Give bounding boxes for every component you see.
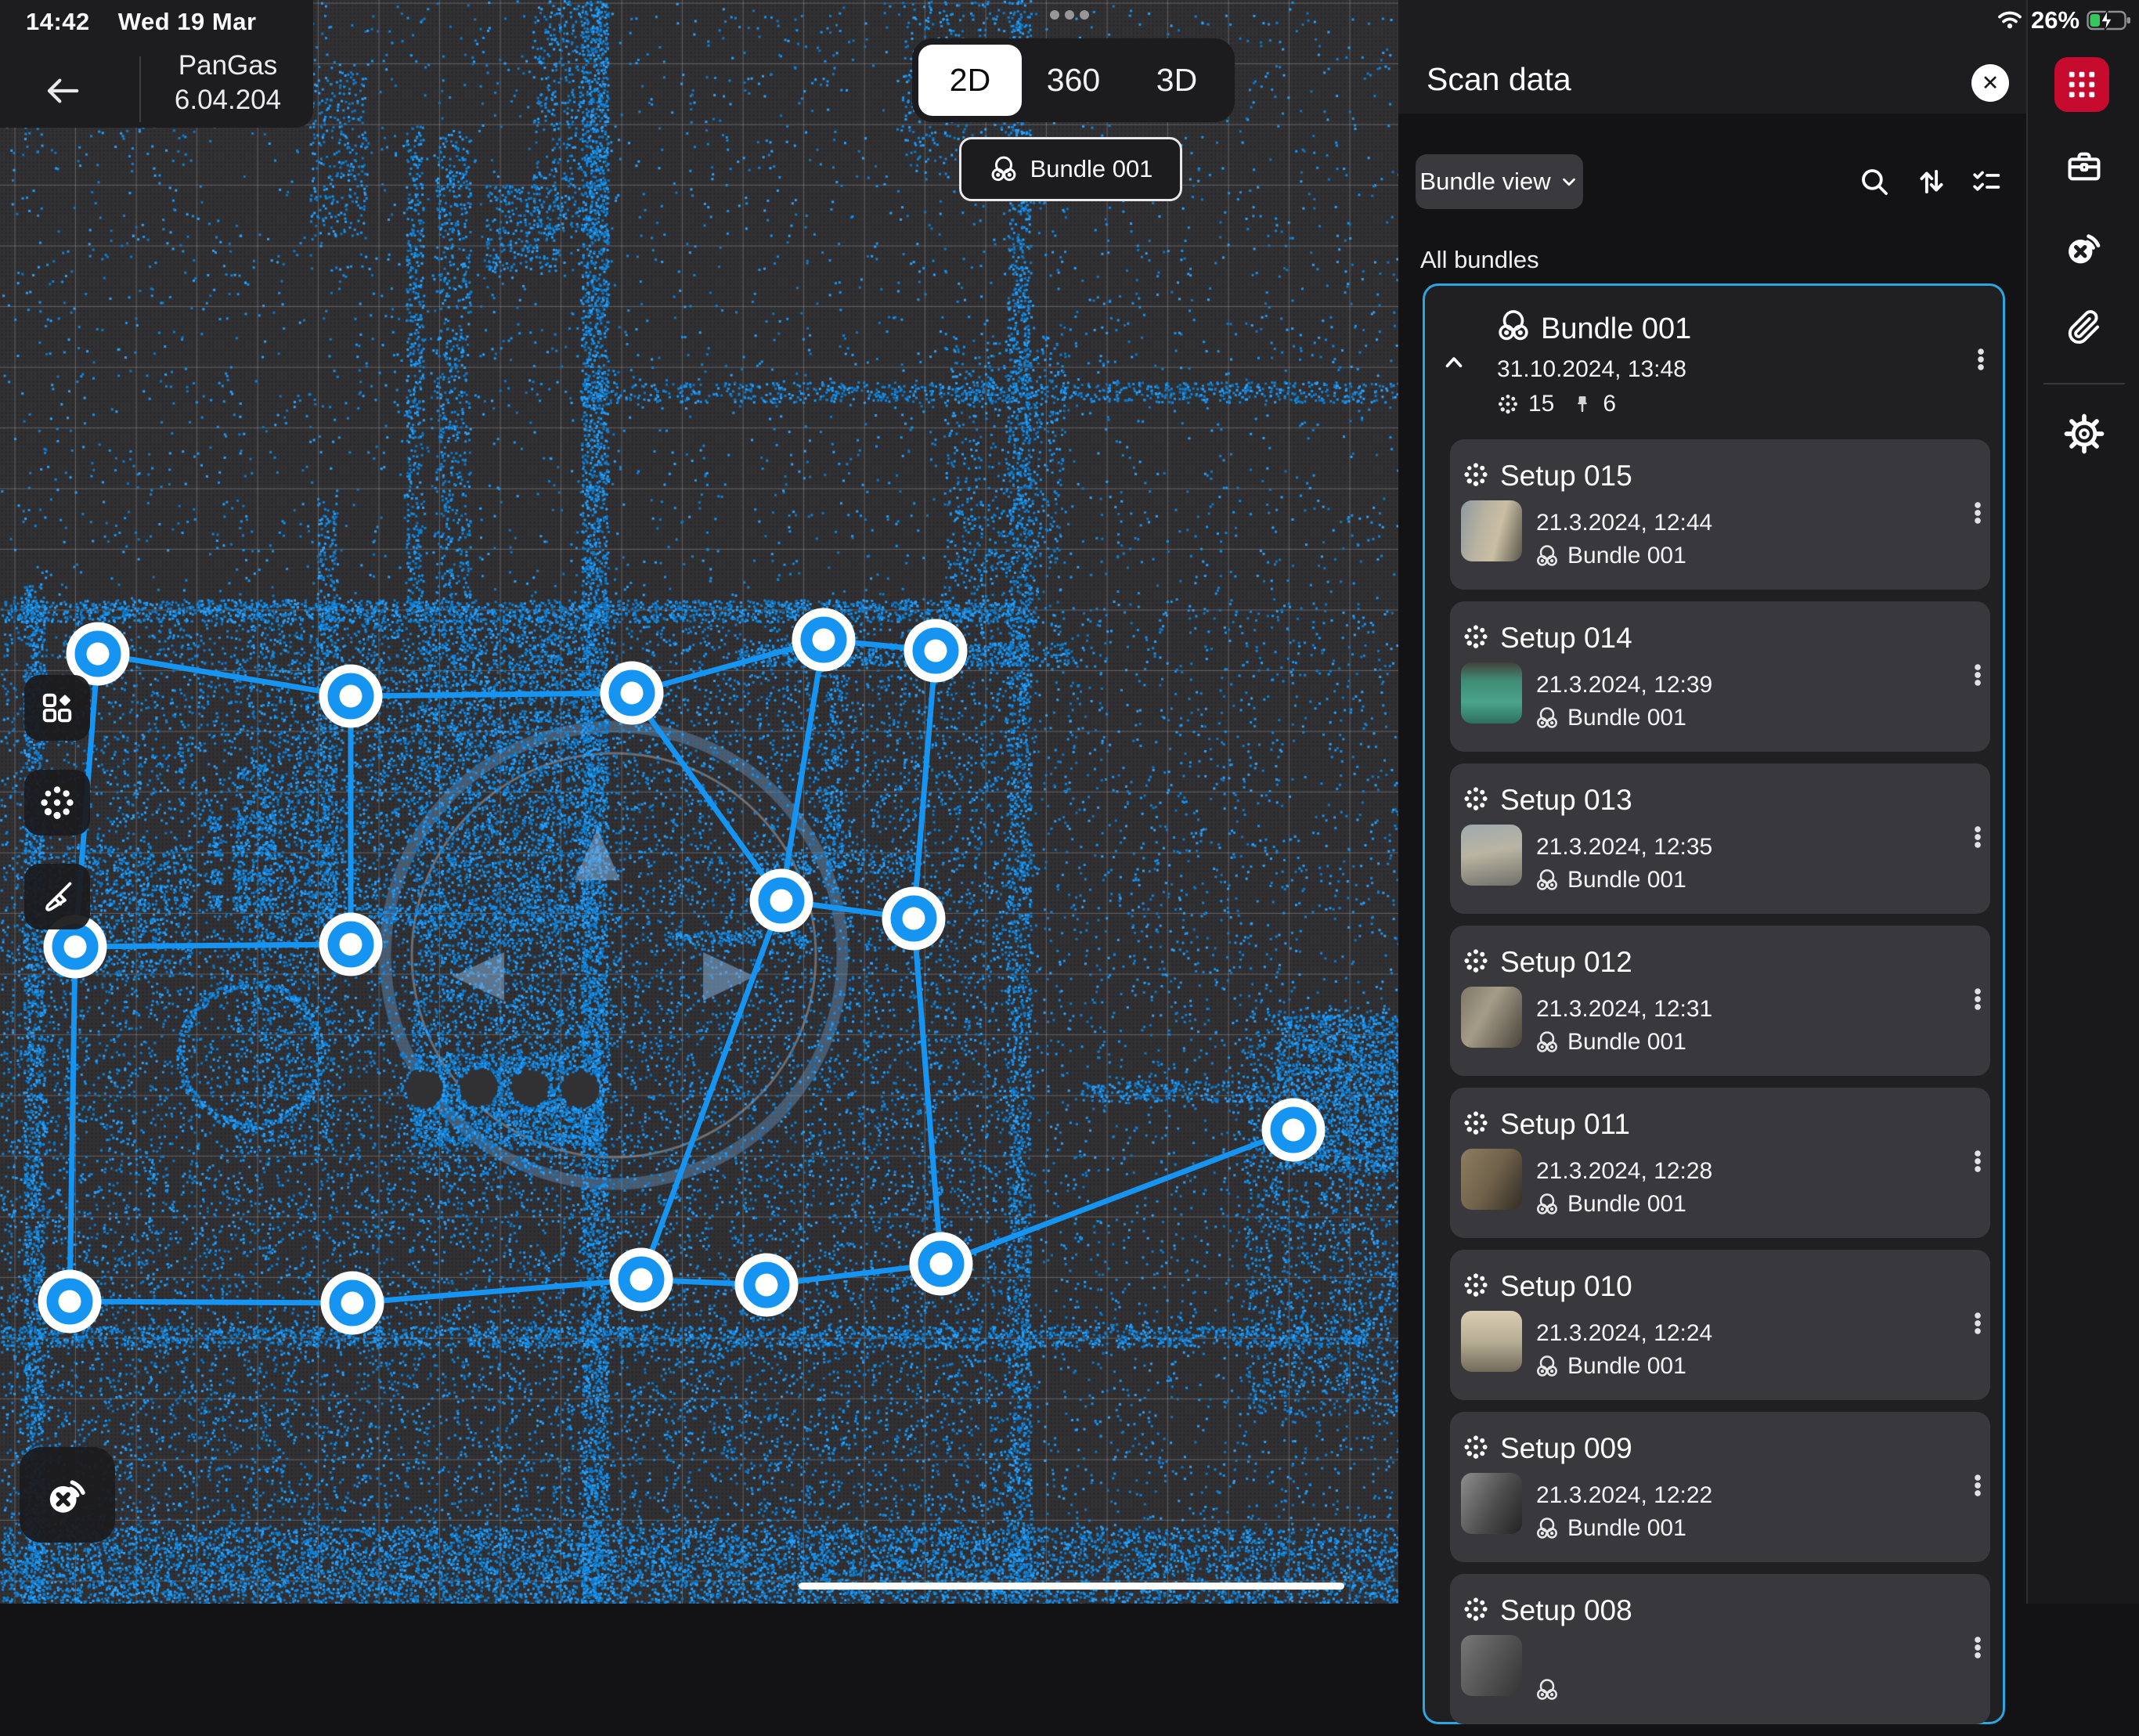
setup-network bbox=[0, 0, 1398, 1604]
apps-grid-button[interactable] bbox=[2054, 57, 2109, 112]
toggle-3d[interactable]: 3D bbox=[1125, 45, 1228, 116]
setup-bundle-row: Bundle 001 bbox=[1535, 1515, 1686, 1542]
project-title: PanGas 6.04.204 bbox=[149, 49, 307, 117]
setup-link-line bbox=[351, 693, 632, 696]
home-indicator[interactable] bbox=[799, 1583, 1344, 1590]
setup-link-line bbox=[781, 640, 824, 900]
setup-marker[interactable] bbox=[604, 666, 659, 720]
setup-marker[interactable] bbox=[70, 626, 125, 681]
chevron-down-icon bbox=[1559, 171, 1579, 192]
kebab-icon bbox=[1964, 500, 1991, 526]
battery-percent: 26% bbox=[2031, 6, 2079, 34]
setup-list: Setup 015 21.3.2024, 12:44 Bundle 001 Se… bbox=[1450, 439, 1990, 1736]
setup-menu-button[interactable] bbox=[1960, 1622, 1995, 1673]
setup-link-line bbox=[70, 947, 75, 1301]
setup-card[interactable]: Setup 010 21.3.2024, 12:24 Bundle 001 bbox=[1450, 1250, 1990, 1400]
kebab-icon bbox=[1964, 662, 1991, 688]
search-icon bbox=[1858, 165, 1891, 198]
categories-icon bbox=[39, 690, 75, 726]
setup-bundle-row: Bundle 001 bbox=[1535, 1029, 1686, 1056]
search-button[interactable] bbox=[1856, 164, 1892, 200]
setup-thumbnail[interactable] bbox=[1461, 500, 1522, 561]
setup-title: Setup 010 bbox=[1500, 1270, 1632, 1303]
status-time-date: 14:42Wed 19 Mar bbox=[26, 8, 285, 36]
battery-charging-icon bbox=[2086, 9, 2134, 32]
back-button[interactable] bbox=[41, 69, 85, 113]
setup-link-line bbox=[941, 1130, 1293, 1264]
bundle-icon bbox=[989, 154, 1019, 184]
wifi-icon bbox=[1995, 4, 2025, 34]
setup-link-line bbox=[75, 944, 351, 947]
scan-dots-icon bbox=[1463, 461, 1489, 488]
sort-button[interactable] bbox=[1914, 164, 1950, 200]
kebab-icon bbox=[1968, 346, 1994, 373]
panel-header: Scan data ✕ bbox=[1398, 0, 2026, 114]
setup-link-line bbox=[352, 1279, 641, 1303]
setup-title: Setup 008 bbox=[1500, 1594, 1632, 1627]
divider bbox=[139, 56, 141, 122]
setup-card[interactable]: Setup 009 21.3.2024, 12:22 Bundle 001 bbox=[1450, 1412, 1990, 1562]
scanner-disconnected-icon bbox=[45, 1472, 90, 1518]
gear-icon bbox=[2064, 413, 2105, 454]
attachment-icon bbox=[2065, 309, 2104, 348]
bundle-icon bbox=[1535, 1516, 1560, 1541]
setup-card[interactable]: Setup 013 21.3.2024, 12:35 Bundle 001 bbox=[1450, 763, 1990, 914]
status-time: 14:42 bbox=[26, 8, 90, 35]
toggle-360[interactable]: 360 bbox=[1022, 45, 1125, 116]
setup-bundle-row: Bundle 001 bbox=[1535, 1353, 1686, 1380]
scan-dots-icon bbox=[1463, 1596, 1489, 1622]
setup-bundle-label: Bundle 001 bbox=[1567, 1515, 1686, 1542]
apps-grid-icon bbox=[2061, 63, 2103, 106]
setup-bundle-row: Bundle 001 bbox=[1535, 543, 1686, 569]
setup-thumbnail[interactable] bbox=[1461, 1149, 1522, 1210]
section-label: All bundles bbox=[1420, 246, 1539, 274]
active-bundle-pill[interactable]: Bundle 001 bbox=[959, 137, 1182, 201]
scan-dots-icon bbox=[1463, 1272, 1489, 1298]
kebab-icon bbox=[1964, 1472, 1991, 1499]
setup-card[interactable]: Setup 012 21.3.2024, 12:31 Bundle 001 bbox=[1450, 926, 1990, 1076]
drag-handle-icon[interactable] bbox=[1050, 10, 1089, 20]
scan-data-panel: Scan data ✕ Bundle view All bundles Bund… bbox=[1398, 0, 2026, 1604]
setup-thumbnail[interactable] bbox=[1461, 662, 1522, 724]
collapse-button[interactable] bbox=[1437, 345, 1471, 380]
bundle-icon bbox=[1535, 543, 1560, 568]
scan-dots-icon bbox=[1463, 785, 1489, 812]
setup-bundle-row: Bundle 001 bbox=[1535, 705, 1686, 731]
setup-link-line bbox=[914, 919, 941, 1264]
setup-title: Setup 014 bbox=[1500, 622, 1632, 655]
view-selector-dropdown[interactable]: Bundle view bbox=[1416, 154, 1583, 209]
setup-marker[interactable] bbox=[886, 891, 941, 946]
bundle-timestamp: 31.10.2024, 13:48 bbox=[1497, 356, 1686, 383]
bundle-icon bbox=[1535, 1192, 1560, 1217]
setup-marker[interactable] bbox=[914, 1236, 969, 1291]
chevron-up-icon bbox=[1441, 349, 1467, 376]
setup-bundle-row bbox=[1535, 1677, 1567, 1702]
setup-marker[interactable] bbox=[739, 1258, 794, 1312]
map-viewport[interactable]: 14:42Wed 19 Mar PanGas 6.04.204 2D 360 3… bbox=[0, 0, 1398, 1604]
setups-tool-button[interactable] bbox=[24, 770, 90, 836]
bundle-icon bbox=[1535, 1030, 1560, 1055]
bundle-icon bbox=[1495, 308, 1531, 344]
setup-bundle-label: Bundle 001 bbox=[1567, 1191, 1686, 1218]
kebab-icon bbox=[1964, 1634, 1991, 1661]
setup-thumbnail[interactable] bbox=[1461, 825, 1522, 886]
pin-icon bbox=[1571, 393, 1593, 415]
setup-thumbnail[interactable] bbox=[1461, 1635, 1522, 1696]
divider bbox=[2043, 383, 2125, 384]
project-version: 6.04.204 bbox=[149, 83, 307, 117]
setup-card[interactable]: Setup 008 bbox=[1450, 1574, 1990, 1724]
setup-title: Setup 009 bbox=[1500, 1432, 1632, 1465]
setup-menu-button[interactable] bbox=[1960, 650, 1995, 700]
close-button[interactable]: ✕ bbox=[1971, 64, 2009, 102]
setup-menu-button[interactable] bbox=[1960, 812, 1995, 862]
setup-marker[interactable] bbox=[614, 1252, 669, 1307]
setup-bundle-label: Bundle 001 bbox=[1567, 1029, 1686, 1056]
scan-dots-icon bbox=[38, 784, 76, 821]
setup-menu-button[interactable] bbox=[1960, 1298, 1995, 1348]
setup-timestamp: 21.3.2024, 12:39 bbox=[1536, 672, 1712, 698]
setup-timestamp: 21.3.2024, 12:24 bbox=[1536, 1320, 1712, 1347]
status-date: Wed 19 Mar bbox=[118, 8, 257, 35]
setup-timestamp: 21.3.2024, 12:44 bbox=[1536, 510, 1712, 536]
kebab-icon bbox=[1964, 1310, 1991, 1337]
setup-marker[interactable] bbox=[323, 669, 378, 724]
bundle-icon bbox=[1535, 706, 1560, 731]
setup-timestamp: 21.3.2024, 12:31 bbox=[1536, 996, 1712, 1023]
view-mode-toggle: 2D 360 3D bbox=[912, 38, 1235, 122]
bundle-icon bbox=[1535, 868, 1560, 893]
kebab-icon bbox=[1964, 986, 1991, 1012]
battery-status: 26% bbox=[2031, 6, 2139, 34]
toolbox-button[interactable] bbox=[2064, 145, 2105, 186]
bundle-stats: 15 6 bbox=[1497, 391, 1616, 417]
setup-marker[interactable] bbox=[42, 1274, 97, 1329]
scan-dots-icon bbox=[1463, 947, 1489, 974]
bundle-icon bbox=[1535, 1354, 1560, 1379]
setup-link-line bbox=[914, 651, 936, 919]
scan-dots-icon bbox=[1497, 393, 1519, 415]
bundle-icon bbox=[1535, 1677, 1560, 1702]
setup-title: Setup 013 bbox=[1500, 784, 1632, 817]
setup-link-line bbox=[98, 654, 351, 696]
back-arrow-icon bbox=[41, 69, 85, 113]
setup-menu-button[interactable] bbox=[1960, 1136, 1995, 1186]
setup-link-line bbox=[632, 693, 781, 900]
setup-menu-button[interactable] bbox=[1960, 1460, 1995, 1510]
checklist-icon bbox=[1970, 165, 2003, 198]
setup-bundle-label: Bundle 001 bbox=[1567, 705, 1686, 731]
layers-tool-button[interactable] bbox=[24, 675, 90, 741]
setup-title: Setup 015 bbox=[1500, 460, 1632, 493]
scan-dots-icon bbox=[1463, 623, 1489, 650]
setup-link-line bbox=[70, 1301, 352, 1303]
panel-title: Scan data bbox=[1427, 61, 1571, 98]
cut-tool-button[interactable] bbox=[24, 864, 90, 929]
setup-marker[interactable] bbox=[325, 1276, 380, 1330]
bundle-group-card[interactable]: Bundle 001 31.10.2024, 13:48 15 6 Setup … bbox=[1423, 283, 2005, 1724]
active-bundle-label: Bundle 001 bbox=[1030, 155, 1153, 183]
scanner-connection-button[interactable] bbox=[2064, 227, 2105, 268]
setup-bundle-row: Bundle 001 bbox=[1535, 867, 1686, 893]
pin-count: 6 bbox=[1603, 391, 1616, 417]
setup-bundle-row: Bundle 001 bbox=[1535, 1191, 1686, 1218]
setup-marker[interactable] bbox=[323, 917, 378, 972]
scanner-disconnected-button[interactable] bbox=[20, 1447, 115, 1543]
close-icon: ✕ bbox=[1982, 71, 2000, 96]
project-card: 14:42Wed 19 Mar PanGas 6.04.204 bbox=[0, 0, 313, 128]
right-toolbar: 26% bbox=[2026, 0, 2139, 1604]
setup-title: Setup 011 bbox=[1500, 1108, 1630, 1141]
setup-timestamp: 21.3.2024, 12:22 bbox=[1536, 1482, 1712, 1509]
setup-thumbnail[interactable] bbox=[1461, 1311, 1522, 1372]
settings-button[interactable] bbox=[2064, 413, 2105, 454]
setup-bundle-label: Bundle 001 bbox=[1567, 1353, 1686, 1380]
setup-card[interactable]: Setup 014 21.3.2024, 12:39 Bundle 001 bbox=[1450, 601, 1990, 752]
multiselect-button[interactable] bbox=[1968, 164, 2004, 200]
bundle-menu-button[interactable] bbox=[1964, 334, 1998, 384]
setup-marker[interactable] bbox=[908, 623, 963, 678]
setup-timestamp: 21.3.2024, 12:35 bbox=[1536, 834, 1712, 861]
setup-title: Setup 012 bbox=[1500, 946, 1632, 979]
setup-card[interactable]: Setup 011 21.3.2024, 12:28 Bundle 001 bbox=[1450, 1088, 1990, 1238]
scalpel-icon bbox=[39, 879, 75, 915]
setup-timestamp: 21.3.2024, 12:28 bbox=[1536, 1158, 1712, 1185]
scanner-disconnected-icon bbox=[2064, 227, 2105, 268]
sort-icon bbox=[1915, 165, 1948, 198]
setup-card[interactable]: Setup 015 21.3.2024, 12:44 Bundle 001 bbox=[1450, 439, 1990, 590]
attachments-button[interactable] bbox=[2064, 308, 2105, 348]
bundle-header: Bundle 001 31.10.2024, 13:48 15 6 bbox=[1425, 286, 2003, 439]
setup-marker[interactable] bbox=[796, 612, 851, 667]
toggle-2d[interactable]: 2D bbox=[918, 45, 1022, 116]
setup-bundle-label: Bundle 001 bbox=[1567, 543, 1686, 569]
toolbox-icon bbox=[2064, 145, 2105, 186]
setup-menu-button[interactable] bbox=[1960, 488, 1995, 538]
setup-thumbnail[interactable] bbox=[1461, 987, 1522, 1048]
setup-bundle-label: Bundle 001 bbox=[1567, 867, 1686, 893]
kebab-icon bbox=[1964, 824, 1991, 850]
kebab-icon bbox=[1964, 1148, 1991, 1175]
setup-menu-button[interactable] bbox=[1960, 974, 1995, 1024]
setup-marker[interactable] bbox=[1266, 1103, 1321, 1157]
setup-marker[interactable] bbox=[754, 873, 809, 928]
setup-thumbnail[interactable] bbox=[1461, 1473, 1522, 1534]
project-name: PanGas bbox=[149, 49, 307, 83]
setup-count: 15 bbox=[1528, 391, 1554, 417]
setup-link-line bbox=[641, 900, 781, 1279]
bundle-name: Bundle 001 bbox=[1541, 312, 1691, 346]
scan-dots-icon bbox=[1463, 1110, 1489, 1136]
scan-dots-icon bbox=[1463, 1434, 1489, 1460]
view-selector-label: Bundle view bbox=[1419, 168, 1550, 196]
